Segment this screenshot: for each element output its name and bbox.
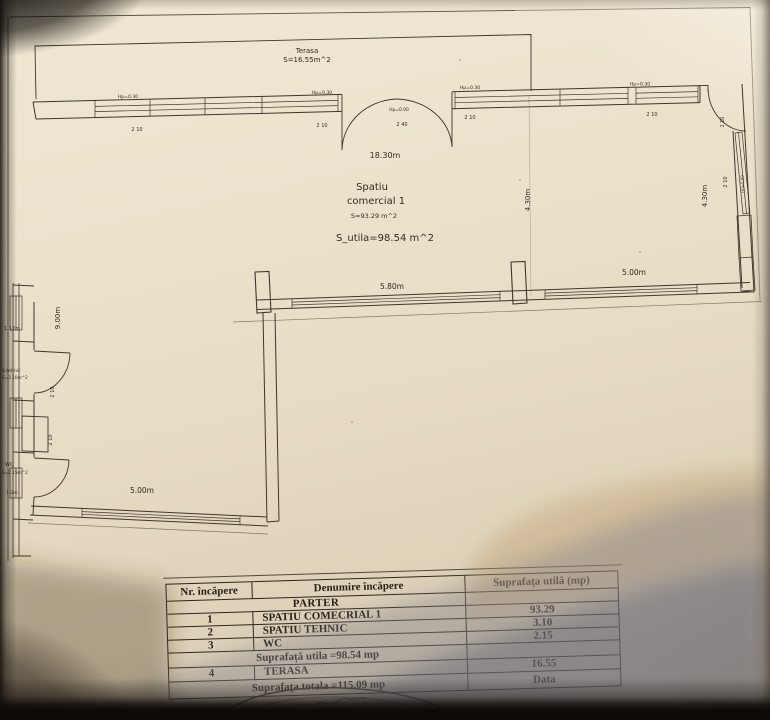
double-door-center [342,92,452,150]
hp030-label-2: Hp=0.30 [312,90,333,96]
terrace-label: Terasa [295,47,319,55]
d210-label-4: 2 10 [646,112,657,118]
pillar [511,262,527,305]
d210-label-3: 2 10 [464,115,475,121]
bottom-wall [233,262,762,323]
hp030-label-4: Hp=0.30 [630,82,651,88]
annex-tehnic-area-label: S=3.10m^2 [2,375,28,380]
terrace-outline [35,35,531,297]
hp090-label: Hp=0.90 [740,175,745,193]
floor-plan-photo: Terasa S=16.55m^2 [0,0,770,720]
usable-area-label: S_utila=98.54 m^2 [336,233,434,244]
annex-rooms [10,283,34,558]
d210-label-6: 2 10 [723,176,729,187]
top-wall [33,86,700,119]
d210-label-1: 2 10 [131,127,142,133]
dim-bottom-1-label: 5.80m [380,282,404,291]
annex-dim-b-label: 1.2m [6,490,18,496]
stamp [212,684,462,720]
dim-right-height-label-2: 4.30m [701,185,709,208]
annex-wc-area-label: S=2.15m^2 [2,470,28,475]
extension-walls [22,302,279,534]
dim-bottom-2-label: 5.00m [622,268,646,277]
hp030-label-1: Hp=0.30 [118,94,139,100]
d210-label-7: 2 10 [50,386,56,397]
annex-wc-label: WC [5,462,14,468]
room-name-line2: comercial 1 [347,196,405,207]
dim-right-height-label-1: 4.30m [524,189,532,212]
room-name-line1: Spatiu [356,182,388,193]
d210-label-8: 2 10 [48,434,54,445]
hp030-label-3: Hp=0.30 [460,85,481,91]
area-table: Nr. încăpere Denumire încăpere Suprafața… [165,570,621,699]
terrace-area-label: S=16.55m^2 [283,56,331,64]
d210-label-2: 2 10 [316,123,327,129]
annex-dim-a-label: 1.12m [4,326,20,332]
data-cell: Data [468,669,620,690]
d240-label: 2 40 [396,122,407,128]
door-arc-2 [34,458,69,497]
dim-top-width-label: 18.30m [370,151,401,160]
room-area-label: S=93.29 m^2 [351,212,397,220]
hp000-label: Hp=0.00 [389,107,409,113]
dim-left-height-label: 9.00m [54,307,62,330]
annex-tehnic-label: S.tehnic [2,368,21,374]
d210-label-5: 2 10 [720,117,726,128]
corner-pillar [255,272,271,314]
dim-ext-bottom-label: 5.00m [130,486,154,495]
